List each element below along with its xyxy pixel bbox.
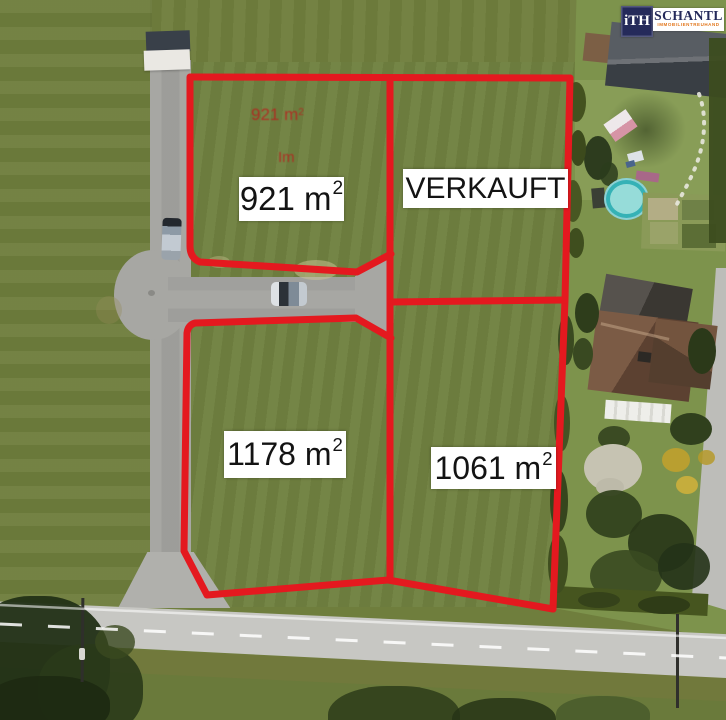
utility-pole-marker [79,648,85,660]
parked-car [271,282,307,306]
access-road-horizontal [168,277,360,322]
tree-blob [95,625,135,659]
aerial-listing-photo: 921 m2 Im 921 m2 VERKAUFT 1178 m2 1061 m… [0,0,726,720]
hedge-blob [578,592,620,608]
grass-plots-texture [183,62,575,607]
bush [573,338,593,370]
swimming-pool-water [610,184,643,214]
hedge-blob [638,596,690,614]
faint-area-annotation: 921 m2 [251,105,304,125]
skylight [637,351,651,363]
hedge-blob [568,228,584,258]
hedge-right [709,38,726,243]
bush [575,293,599,333]
hedge-blob [566,82,586,122]
yellow-flower-bush [698,450,715,465]
tree-blob [658,543,710,590]
company-logo: SCHANTL IMMOBILIENTREUHAND [653,8,724,31]
manhole-cover [148,290,155,296]
hedge-blob [570,130,586,166]
faint-note-annotation: Im [278,149,295,166]
dirt-patch [208,256,230,268]
parked-van [161,218,181,261]
plot-label-bottom-right: 1061 m2 [431,447,556,489]
yellow-flower-bush [662,448,690,472]
dirt-patch [96,296,122,324]
garden-bed [650,222,678,244]
yellow-flower-bush [676,476,698,494]
hedge-blob [554,395,570,451]
garden-bed [648,198,678,220]
company-logo-mark: iTH [621,6,653,37]
utility-pole [676,614,679,708]
plot-label-top-left: 921 m2 [239,177,344,221]
company-subtitle: IMMOBILIENTREUHAND [653,22,724,28]
bush [688,328,716,374]
hedge-blob [558,315,574,365]
shed-roof-white [144,49,191,71]
dirt-patch [294,260,338,280]
plot-label-sold: VERKAUFT [403,169,568,208]
tree-blob [556,696,650,720]
bush [670,413,712,445]
hedge-blob [548,535,568,593]
company-name: SCHANTL [653,9,724,22]
plot-label-bottom-left: 1178 m2 [224,431,346,478]
